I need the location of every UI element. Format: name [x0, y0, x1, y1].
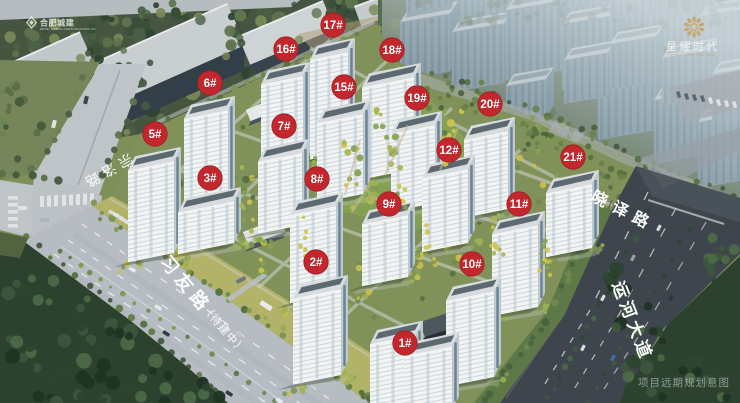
svg-text:1#: 1# [399, 338, 412, 350]
svg-text:8#: 8# [311, 174, 324, 186]
svg-text:21#: 21# [563, 152, 583, 164]
svg-text:10#: 10# [462, 259, 482, 271]
svg-text:18#: 18# [382, 45, 402, 57]
svg-text:XING YAO SHI DAI: XING YAO SHI DAI [670, 53, 716, 57]
svg-text:19#: 19# [407, 93, 427, 105]
svg-text:16#: 16# [276, 44, 296, 56]
svg-text:5#: 5# [149, 129, 162, 141]
svg-text:7#: 7# [278, 121, 291, 133]
svg-text:星耀时代: 星耀时代 [666, 40, 720, 53]
svg-text:3#: 3# [204, 173, 217, 185]
svg-text:11#: 11# [510, 199, 529, 211]
svg-text:9#: 9# [383, 199, 396, 211]
svg-text:2#: 2# [310, 257, 323, 269]
svg-text:12#: 12# [439, 145, 459, 157]
svg-text:6#: 6# [204, 78, 217, 90]
svg-text:20#: 20# [480, 99, 500, 111]
svg-text:HEFEI URBAN CONSTRUCTION CO.: HEFEI URBAN CONSTRUCTION CO. [40, 27, 97, 31]
svg-text:17#: 17# [323, 20, 343, 32]
svg-text:项目远期规划意图: 项目远期规划意图 [638, 376, 730, 389]
svg-text:15#: 15# [334, 82, 354, 94]
svg-text:合肥城建: 合肥城建 [39, 18, 75, 28]
